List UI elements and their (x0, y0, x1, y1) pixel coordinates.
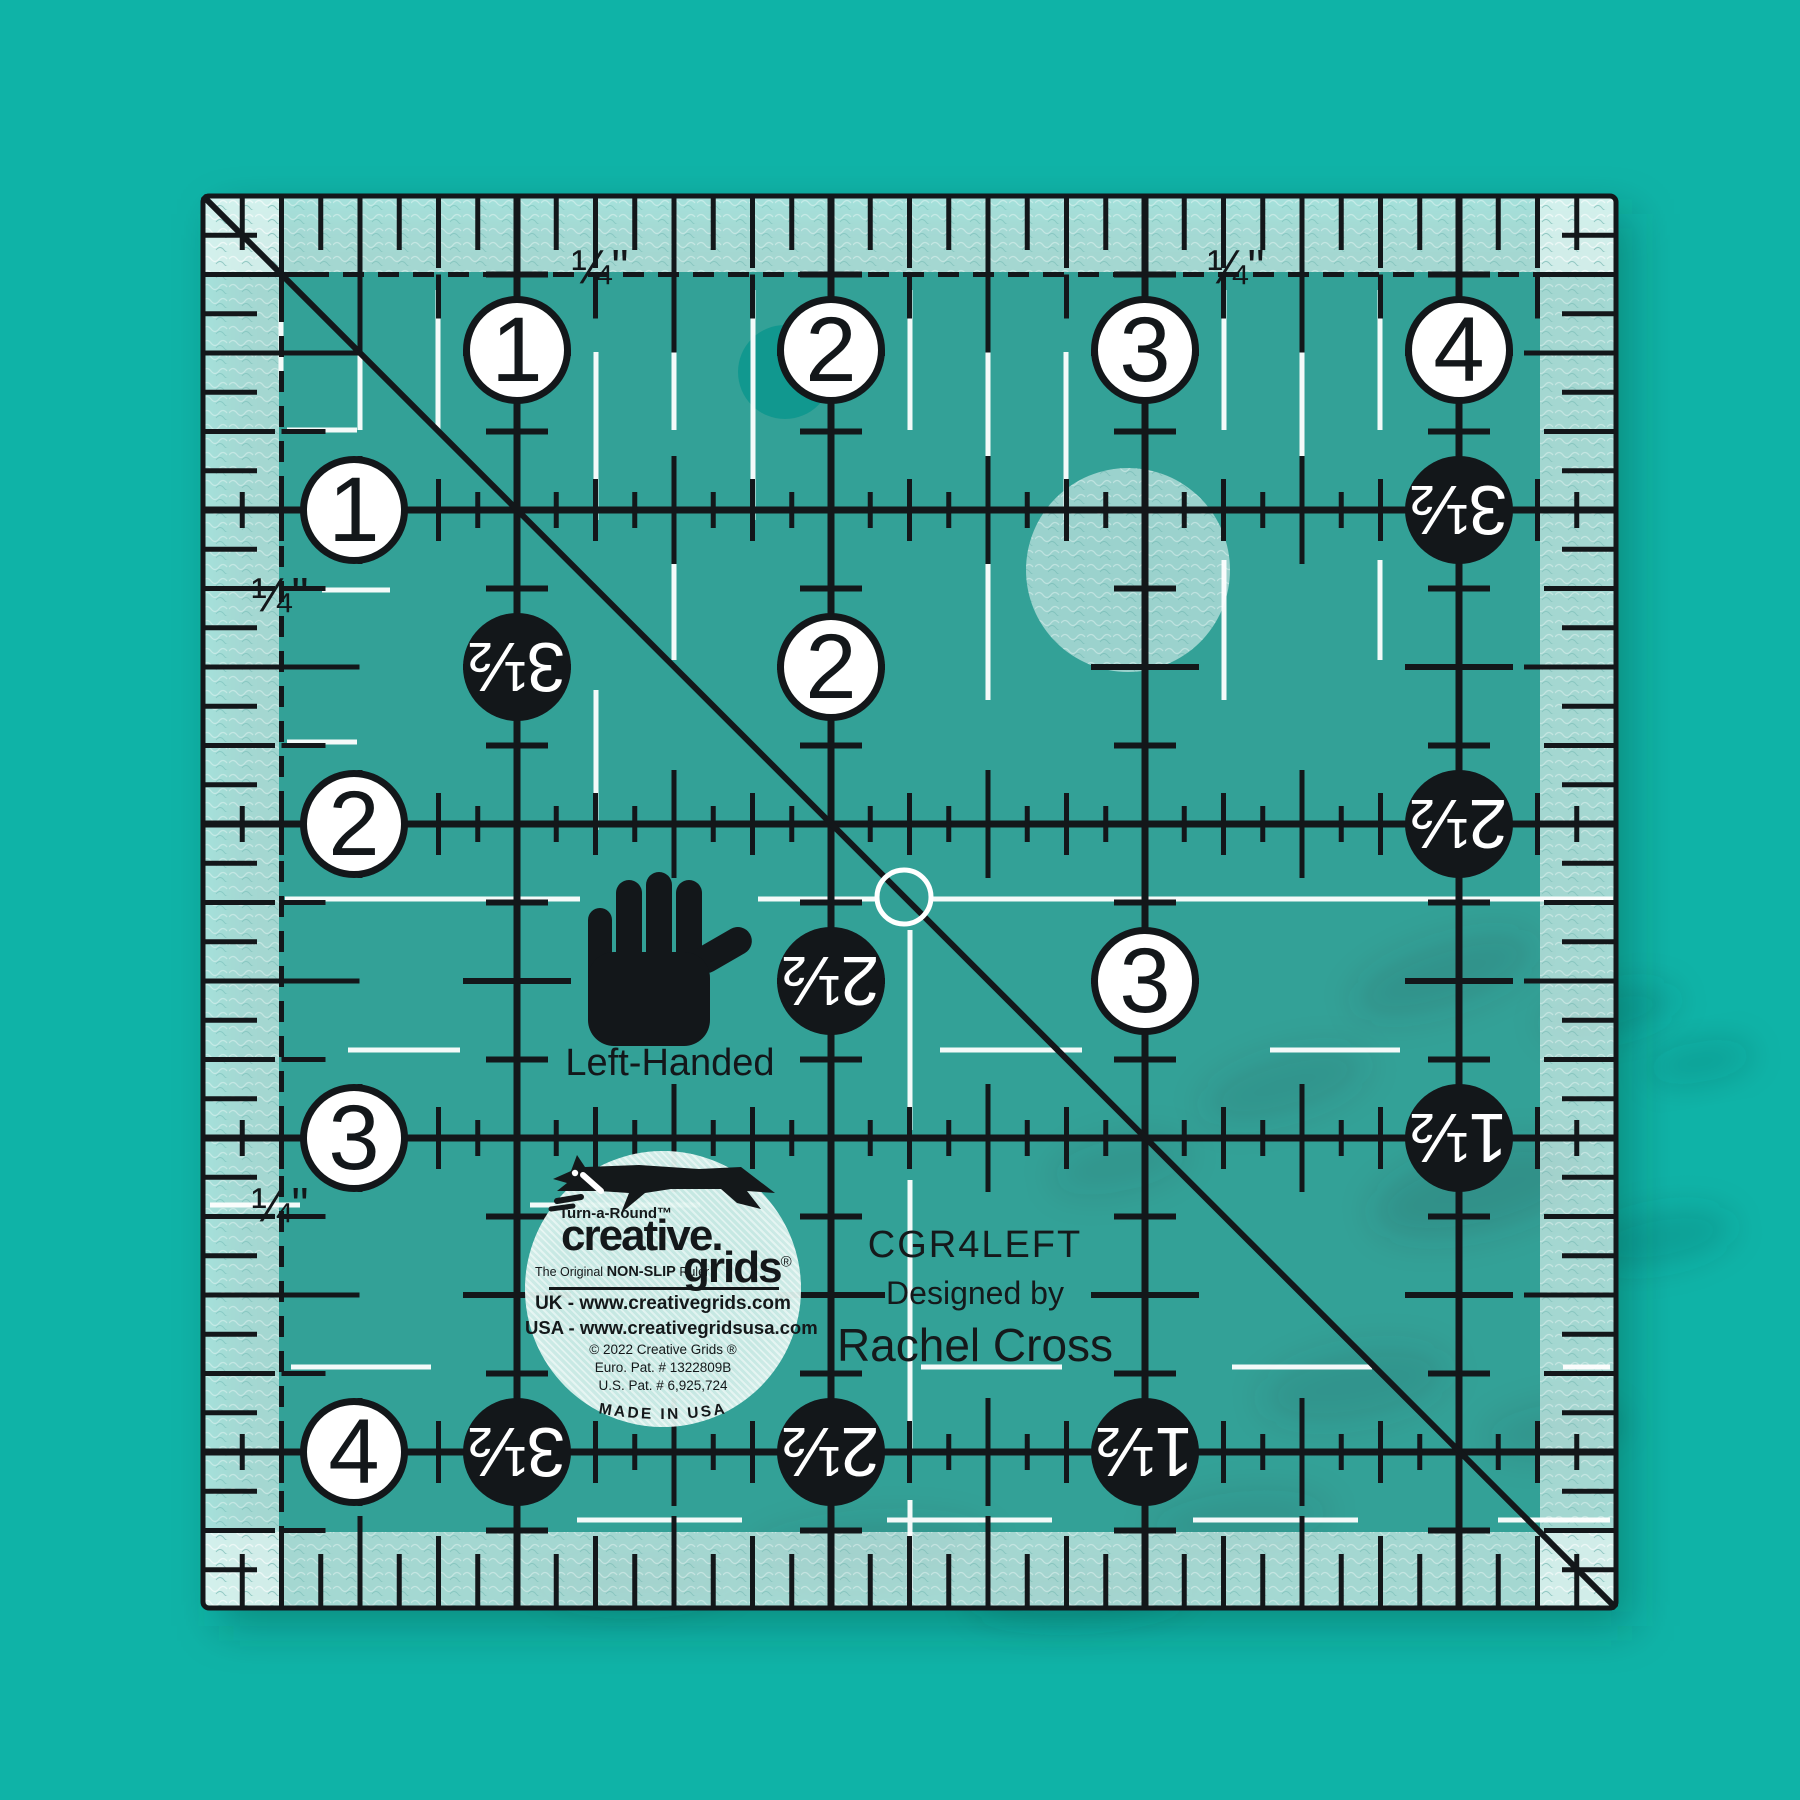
inch-number: 2 (805, 621, 856, 713)
creative-grids-logo-sticker: Turn-a-Round™ creative. grids® The Origi… (525, 1151, 801, 1427)
left-handed-label: Left-Handed (540, 1042, 800, 1085)
half-inch-number: 3½ (468, 632, 565, 702)
half-inch-number: 3½ (468, 1417, 565, 1487)
logo-divider-line (549, 1287, 779, 1290)
svg-text:MADE IN USA: MADE IN USA (598, 1400, 729, 1423)
inch-number: 4 (328, 1406, 379, 1498)
product-photo-stage: Left-Handed Turn-a-Round™ creative. grid… (0, 0, 1800, 1800)
inch-number-circle: 1 (300, 456, 408, 564)
inch-number: 1 (491, 304, 542, 396)
inch-number-circle: 3 (1091, 296, 1199, 404)
half-inch-number: 2½ (782, 946, 879, 1016)
tagline-suffix: Ruler (676, 1265, 709, 1279)
half-inch-number-circle: 2½ (777, 1398, 885, 1506)
model-credit-block: CGR4LEFT Designed by Rachel Cross (815, 1224, 1135, 1372)
left-hand-icon (582, 866, 758, 1048)
quarter-inch-label: ¼" (251, 1179, 308, 1234)
half-inch-number-circle: 2½ (777, 927, 885, 1035)
quarter-inch-label: ¼" (1207, 241, 1264, 296)
inch-number-circle: 1 (463, 296, 571, 404)
inch-number-circle: 2 (300, 770, 408, 878)
half-inch-number: 3½ (1410, 475, 1507, 545)
registered-mark: ® (781, 1253, 792, 1270)
inch-number-circle: 4 (300, 1398, 408, 1506)
inch-number-circle: 2 (777, 296, 885, 404)
half-inch-number-circle: 1½ (1405, 1084, 1513, 1192)
half-inch-number: 1½ (1410, 1103, 1507, 1173)
usa-website: USA - www.creativegridsusa.com (525, 1317, 801, 1339)
euro-patent-line: Euro. Pat. # 1322809B (525, 1360, 801, 1375)
inch-number: 3 (1119, 304, 1170, 396)
tagline: The Original NON-SLIP Ruler (535, 1264, 709, 1280)
half-inch-number-circle: 3½ (1405, 456, 1513, 564)
half-inch-number-circle: 1½ (1091, 1398, 1199, 1506)
inch-number-circle: 4 (1405, 296, 1513, 404)
inch-number: 1 (328, 464, 379, 556)
printed-markings-overlay: Left-Handed Turn-a-Round™ creative. grid… (0, 0, 1800, 1800)
inch-number: 2 (805, 304, 856, 396)
model-number: CGR4LEFT (815, 1224, 1135, 1267)
inch-number: 3 (1119, 935, 1170, 1027)
designer-name: Rachel Cross (815, 1318, 1135, 1372)
tagline-emphasis: NON-SLIP (607, 1264, 676, 1280)
quarter-inch-label: ¼" (251, 569, 308, 624)
inch-number: 3 (328, 1092, 379, 1184)
inch-number: 2 (328, 778, 379, 870)
inch-number-circle: 3 (300, 1084, 408, 1192)
tagline-prefix: The Original (535, 1265, 607, 1279)
half-inch-number: 2½ (782, 1417, 879, 1487)
uk-website: UK - www.creativegrids.com (525, 1293, 801, 1315)
inch-number-circle: 2 (777, 613, 885, 721)
half-inch-number: 1½ (1096, 1417, 1193, 1487)
designed-by-label: Designed by (815, 1275, 1135, 1312)
inch-number: 4 (1433, 304, 1484, 396)
half-inch-number-circle: 3½ (463, 613, 571, 721)
copyright-line: © 2022 Creative Grids ® (525, 1342, 801, 1357)
inch-number-circle: 3 (1091, 927, 1199, 1035)
half-inch-number: 2½ (1410, 789, 1507, 859)
half-inch-number-circle: 2½ (1405, 770, 1513, 878)
made-in-usa-text: MADE IN USA (598, 1400, 729, 1423)
half-inch-number-circle: 3½ (463, 1398, 571, 1506)
quarter-inch-label: ¼" (571, 241, 628, 296)
